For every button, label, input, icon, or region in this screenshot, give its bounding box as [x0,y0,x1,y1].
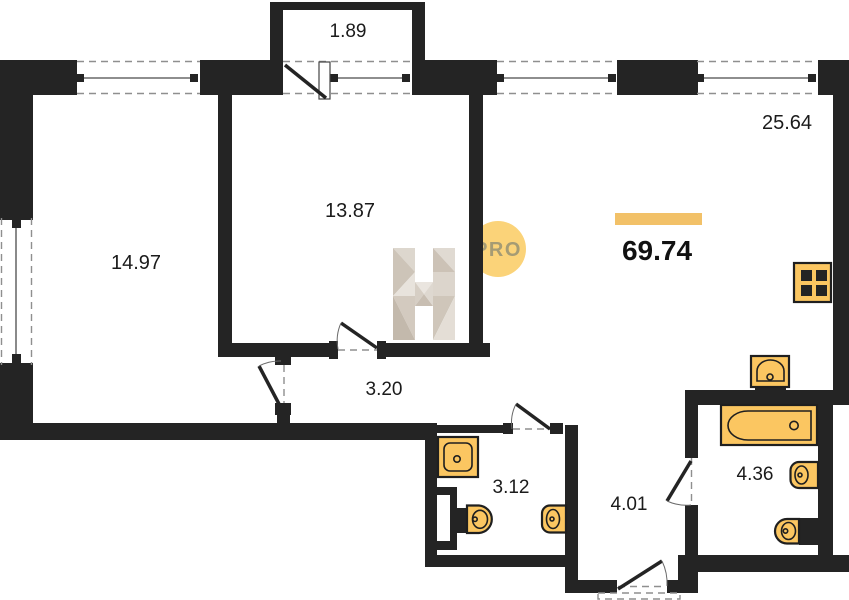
total-area-label: 69.74 [622,235,692,266]
floor-plan-canvas: PRO [0,0,849,600]
bathtub-icon [721,405,817,445]
shower-room-area-label: 3.12 [493,477,530,498]
door-bathroom [667,458,692,505]
bathroom-toilet-icon [775,518,818,545]
window-left-wall [2,218,32,365]
room-middle-area-label: 13.87 [325,200,375,222]
room-left-area-label: 14.97 [111,252,161,274]
kitchen-sink-icon [751,356,789,392]
window-left-room-top [76,62,200,94]
toilet-icon [455,506,492,534]
total-area-block: 69.74 [615,213,702,266]
door-shower-room [512,404,550,429]
living-kitchen-area-label: 25.64 [762,112,812,134]
window-living-left [496,62,617,94]
watermark-logo [393,248,455,340]
balcony-area-label: 1.89 [330,21,367,42]
window-living-right [696,62,817,94]
accent-bar [615,213,702,225]
bathroom-sink-icon [791,462,819,488]
bathroom-area-label: 4.36 [737,464,774,485]
hallway-area-label: 3.20 [366,379,403,400]
sink-icon [542,506,566,533]
stove-icon [794,263,831,302]
balcony-door-and-window [283,62,412,100]
entrance-threshold [598,593,680,599]
shower-icon [438,437,478,477]
door-room-left [259,361,284,404]
duct-shaft [437,495,450,541]
floor-plan: PRO [0,0,849,600]
door-room-middle [337,323,377,350]
entry-hall-area-label: 4.01 [611,494,648,515]
